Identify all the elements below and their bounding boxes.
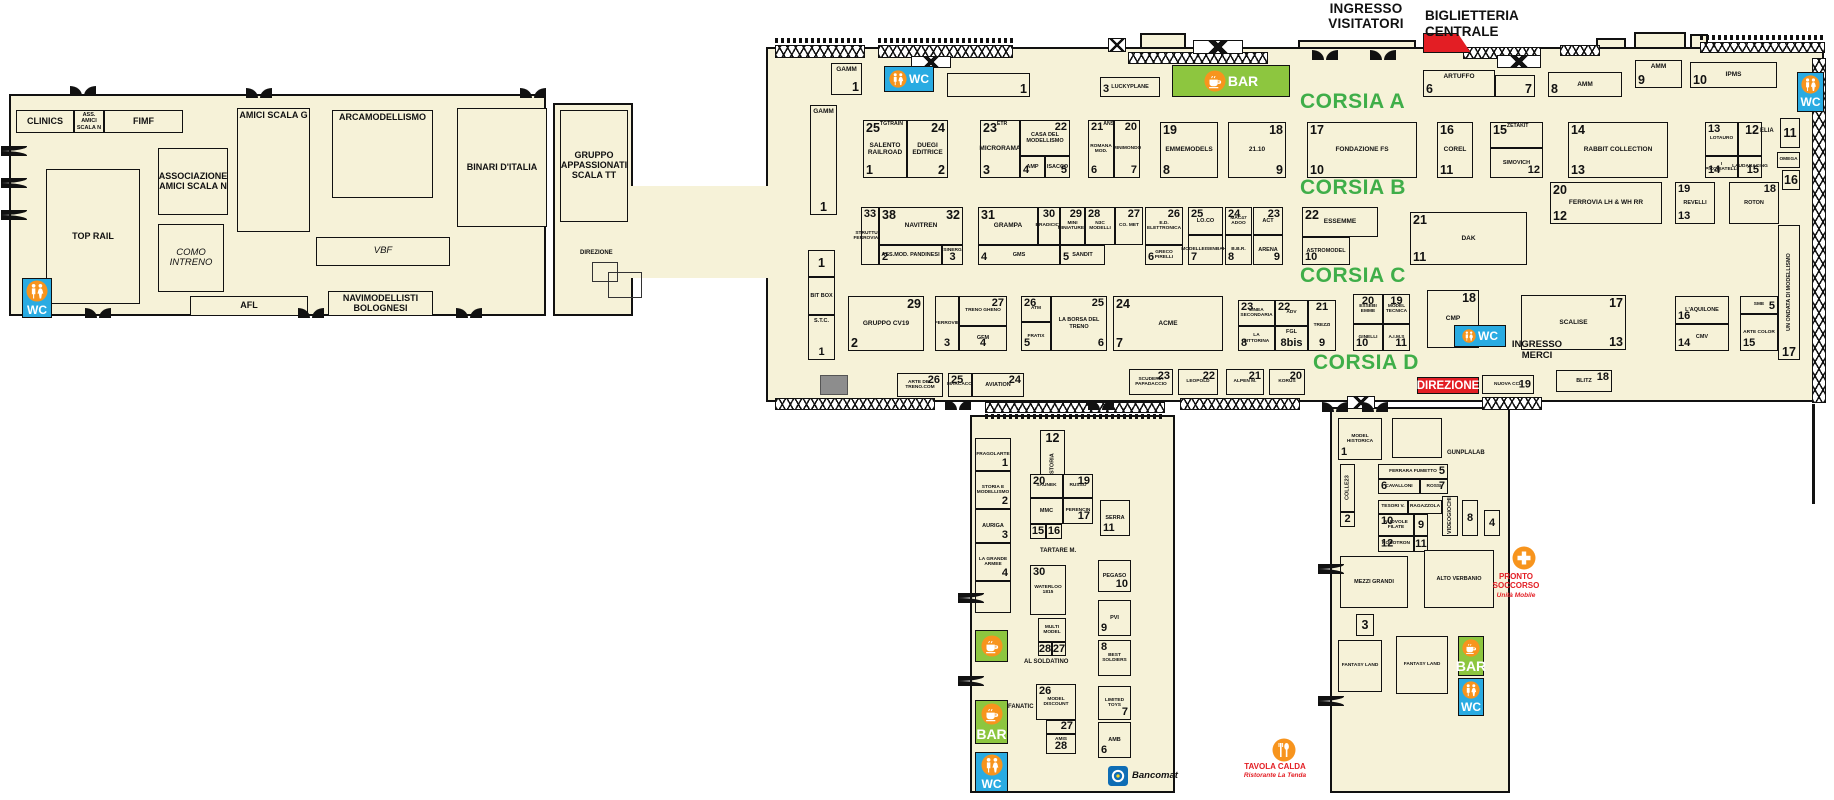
wc-people-icon	[889, 70, 907, 88]
stand-number: 28	[1088, 209, 1100, 220]
stand-dak: 21DAK11	[1410, 212, 1527, 265]
stand-videogiochi: VIDEOGIOCHI	[1442, 496, 1458, 536]
stand-fragolarte: FRAGOLARTE1	[975, 438, 1011, 471]
stand-ass-mod-pandinesi: ASS.MOD. PANDINESI2	[879, 245, 942, 265]
stand-e-d-elettronica: 26E.D. ELETTRONICA	[1145, 207, 1183, 245]
stand-number: 2	[1341, 513, 1354, 526]
stand-number: 15	[1747, 165, 1759, 176]
ambulance-icon	[1512, 546, 1536, 575]
stand-acme: 24ACME7	[1113, 296, 1223, 351]
stand-amb: AMB6	[1098, 722, 1131, 758]
stand-gfm: GFM4	[959, 326, 1007, 351]
stand-perencin: PERENCIN17	[1063, 498, 1093, 524]
stand-number: 2	[1002, 496, 1008, 507]
stand-fantasy-land: FANTASY LAND	[1338, 640, 1382, 692]
stand-number: 20	[1290, 371, 1302, 382]
stand-number: 22	[1203, 371, 1215, 382]
restaurant-icon	[1272, 738, 1296, 767]
stand-sinerg: SINERG3	[942, 245, 963, 265]
stand-number: 2	[851, 337, 858, 350]
label-fanatic: FANATIC	[1008, 704, 1034, 710]
stand-number: 11	[1103, 523, 1115, 534]
stand-number: 12	[1745, 124, 1759, 137]
stand-number: 25	[1191, 209, 1203, 220]
stand-number: 1	[866, 164, 873, 177]
wc-label: WC	[1478, 329, 1498, 343]
stand-number: 9	[1274, 252, 1280, 263]
stand-alpen-m: 21ALPEN M.	[1226, 369, 1264, 395]
stand-luckyplane: LUCKYPLANE3	[1100, 77, 1160, 97]
stand-number: 1	[809, 251, 834, 276]
stand-name: MMC	[1031, 499, 1062, 523]
stand-name: GRUPPO APPASSIONATI SCALA TT	[561, 111, 627, 221]
stand-blitz: 18BLITZ	[1556, 370, 1612, 392]
stand-artuffo: ARTUFFO6	[1423, 70, 1495, 97]
stand-tesori-v: TESORI V.	[1378, 500, 1408, 514]
window-icon	[1497, 55, 1541, 68]
stand-number: 38	[882, 209, 896, 222]
stand-number: 10	[1381, 516, 1393, 527]
stand-atm: 26ATM	[1021, 296, 1051, 322]
stand-name: BINARI D'ITALIA	[458, 109, 546, 226]
stand-number: 22	[1278, 302, 1290, 313]
stand-name: BIT BOX	[809, 278, 834, 314]
stand-s-t-c: S.T.C.1	[808, 315, 835, 360]
wc-people-icon	[26, 280, 48, 302]
stand-number: 20	[1553, 184, 1567, 197]
stand-number: 8	[1163, 164, 1170, 177]
stand-roton: 18ROTON	[1729, 182, 1779, 224]
stand-number: 27	[992, 298, 1004, 309]
stand-number: 3	[983, 164, 990, 177]
stand-1: 1	[947, 73, 1030, 97]
stand-number: 17	[1779, 346, 1799, 359]
stand-gamm: GAMM1	[831, 63, 862, 95]
stand-number: 12	[1381, 539, 1393, 550]
stand-number: 5	[1439, 466, 1445, 477]
stand-isacco: ISACCO5	[1045, 156, 1070, 178]
stand-minimondo: 20MINIMONDO7	[1114, 120, 1140, 178]
stand-gruppo-cv19: 29GRUPPO CV192	[848, 296, 924, 351]
stand-number: 7	[1116, 337, 1123, 350]
stand-name: AFL	[191, 297, 307, 315]
label-al-soldatino: AL SOLDATINO	[1024, 659, 1068, 665]
stand-pvi: PVI9	[1098, 600, 1131, 636]
stand-name: AMICI SCALA G	[238, 109, 309, 231]
stand-name: GAMM	[811, 106, 836, 214]
stand-name: RAGAZZOLA	[1409, 501, 1441, 513]
stand-russo: 19RUSSO	[1063, 474, 1093, 498]
stand-number: 11	[1781, 119, 1799, 147]
wc-label: WC	[982, 777, 1002, 791]
stand-limited-toys: LIMITED TOYS7	[1098, 686, 1131, 720]
label-ristorante-la-tenda: Ristorante La Tenda	[1240, 772, 1310, 779]
cafe-box	[975, 630, 1008, 662]
stand-colle23: COLLE23	[1340, 464, 1355, 512]
bar-label: BAR	[1228, 73, 1258, 89]
window-icon	[1108, 38, 1126, 52]
stand-11: 11	[1780, 118, 1800, 148]
stand-top-rail: TOP RAIL	[46, 169, 140, 304]
stand-number: 20	[1354, 296, 1382, 307]
stand-number: 6	[1098, 338, 1104, 349]
stand-ipms: IPMS10	[1690, 62, 1777, 88]
stand-amm: AMM9	[1635, 60, 1682, 88]
stand-mac47-adoo: 24MAC47 ADOO	[1225, 207, 1252, 235]
stand-number: 1	[809, 347, 834, 358]
stand-grampa: 31GRAMPA	[978, 207, 1038, 245]
stand-1: 1	[808, 250, 835, 277]
label-ingresso-visitatori: INGRESSO VISITATORI	[1318, 2, 1414, 32]
room-corridor	[630, 186, 770, 278]
door-icon	[246, 88, 272, 98]
stand-serra: SERRA11	[1100, 500, 1130, 536]
door-icon	[456, 308, 482, 318]
stand-navitren: 3832NAVITREN	[879, 207, 963, 245]
stand-number: 13	[1571, 164, 1585, 177]
label-tartare-m: TARTARE M.	[1040, 548, 1076, 554]
stand-treno-gheno: 27TRENO GHENO	[959, 296, 1007, 326]
stand-nuova-ccl: 19NUOVA CCL	[1482, 375, 1534, 394]
stand-number: 21	[1309, 302, 1335, 313]
door-icon	[1, 210, 27, 220]
stand-robotron: 12ROBOTRON	[1378, 536, 1414, 552]
stand-number: 10	[1356, 338, 1368, 349]
stand-number: 7	[1191, 252, 1197, 263]
stand-number: 27	[1128, 209, 1140, 220]
stand-number: 25	[951, 375, 963, 386]
stand-number: 5	[1769, 301, 1775, 312]
stand-bradicich: 30BRADICICH	[1038, 207, 1060, 245]
stand-name: ASSOCIAZIONE AMICI SCALA N	[159, 149, 227, 214]
truss-wall	[1482, 397, 1542, 410]
stand-ginelli: GINELLI10	[1353, 324, 1383, 351]
stand-number: 12	[1041, 432, 1064, 445]
stand-sandit: SANDIT5	[1060, 245, 1105, 265]
stand-lotauro: 13LOTAURO	[1705, 122, 1738, 156]
label-ingresso-merci: INGRESSO MERCI	[1498, 340, 1576, 362]
stand-number: 13	[1708, 124, 1720, 135]
stand-21-10: 1821.109	[1228, 122, 1286, 178]
label-direzione: DIREZIONE	[580, 250, 613, 256]
stand-bit-box: BIT BOX	[808, 277, 835, 315]
door-icon	[1088, 400, 1114, 410]
stand-2: 2	[1340, 512, 1355, 527]
stand-name: LUCKYPLANE	[1101, 78, 1159, 96]
door-icon	[1318, 696, 1344, 706]
stand-7: 7	[1495, 75, 1535, 97]
stand-number: 22	[1055, 122, 1067, 133]
stand-number: 13	[1678, 211, 1690, 222]
stand-number: 11	[1440, 164, 1453, 177]
stand-pegaso: PEGASO10	[1098, 560, 1131, 592]
stand-number: 10	[1305, 252, 1317, 263]
stand-number: 28	[1047, 741, 1075, 752]
stand-trezzi: 21TREZZI9	[1308, 300, 1336, 351]
stand-number: 1	[1020, 83, 1027, 96]
stand-number: 24	[1009, 375, 1021, 386]
stand-number: 19	[1163, 124, 1177, 137]
stand-mini-miniatures: 29MINI MINIATURES	[1060, 207, 1085, 245]
stand-modelleisenbahn: MODELLEISENBAHN7	[1188, 235, 1223, 265]
stand-28: 28	[1038, 642, 1052, 656]
stand-amm: AMM8	[1548, 72, 1622, 97]
label-gunplalab: GUNPLALAB	[1447, 450, 1485, 456]
stand-number: 30	[1039, 209, 1059, 220]
stand-number: 17	[1609, 297, 1623, 310]
stand-number: 8	[1551, 83, 1558, 96]
stand-number: 5	[1063, 252, 1069, 263]
stand-number: 16	[1783, 171, 1799, 189]
stand-number: 4	[960, 338, 1006, 349]
wc-box: WC	[884, 66, 934, 92]
door-icon	[298, 308, 324, 318]
stand-name: FERROVIA LH & WH RR	[1551, 183, 1661, 223]
stand-ferrovia-lh-wh-rr: 20FERROVIA LH & WH RR12	[1550, 182, 1662, 224]
stand-number: 6	[1091, 165, 1097, 176]
stand-number: 3	[936, 338, 958, 349]
stand-number: 15	[1743, 338, 1755, 349]
door-icon	[1, 146, 27, 156]
stand-number: 14	[1678, 338, 1690, 349]
stand-number: 5	[1024, 338, 1030, 349]
stand-number: 26	[1039, 686, 1051, 697]
stand-16: 16	[1782, 170, 1800, 190]
coffee-cup-icon	[981, 703, 1003, 725]
stand-name: GMS	[979, 246, 1059, 264]
stand-co-met: 27CO. MET	[1115, 207, 1143, 245]
stand-9: 9	[1414, 514, 1428, 536]
stand-number: 9	[1638, 74, 1645, 87]
stand-name: ACME	[1114, 297, 1222, 350]
stand-number: 9	[1101, 623, 1107, 634]
stand-number: 15	[1031, 525, 1045, 538]
door-icon	[958, 676, 984, 686]
stand-multi-model: MULTI MODEL	[1038, 618, 1066, 642]
stand-number: 4	[1002, 568, 1008, 579]
stand-linea-secondaria: 23LINEA SECONDARIA	[1238, 300, 1275, 326]
stand-number: 7	[1439, 481, 1445, 492]
wc-label: WC	[909, 72, 929, 86]
stand-como-intreno: COMO INTRENO	[158, 224, 224, 292]
stand-fondazione-fs: 17FONDAZIONE FS10	[1307, 122, 1417, 178]
stand-amici-scala-g: AMICI SCALA G	[237, 108, 310, 232]
stand-15: 15ZETAKIT	[1490, 122, 1543, 148]
stand-number: 33	[862, 209, 878, 220]
stand-name: FERRARA FUMETTO	[1379, 465, 1447, 478]
stand-number: 9	[1276, 164, 1283, 177]
stand-number: 23	[1268, 209, 1280, 220]
stand-name: MEZZI GRANDI	[1341, 557, 1407, 607]
stand-ferrara-fumetto: FERRARA FUMETTO5	[1378, 464, 1448, 479]
stand-name: UN ONDATA DI MODELLISMO	[1779, 226, 1799, 359]
stand-mezzi-grandi: MEZZI GRANDI	[1340, 556, 1408, 608]
stand-number: 19	[1678, 184, 1690, 195]
stand-number: 22	[1305, 209, 1319, 222]
label-corsia-c: CORSIA C	[1300, 264, 1406, 288]
stand-number: 29	[907, 298, 921, 311]
door-icon	[70, 86, 96, 96]
stand-number: 5	[1061, 165, 1067, 176]
wc-people-icon	[981, 754, 1003, 776]
stand-number: 3	[1357, 615, 1373, 635]
truss-wall	[1180, 398, 1300, 410]
stand-associazione-amici-scala-n: ASSOCIAZIONE AMICI SCALA N	[158, 148, 228, 215]
service-block	[820, 375, 848, 395]
stand-sme: SME5	[1740, 296, 1778, 314]
label-unit-mobile: Unità Mobile	[1486, 592, 1546, 599]
stand-number: 26	[1168, 209, 1180, 220]
door-icon	[1322, 402, 1348, 412]
stand-navimodellisti-bolognesi: NAVIMODELLISTI BOLOGNESI	[328, 291, 433, 316]
stand-la-littorina: LA LITTORINA8	[1238, 326, 1275, 351]
stand-number: 9	[1415, 515, 1427, 535]
stand-act: 23ACT	[1253, 207, 1283, 235]
stand-number: 8	[1228, 252, 1234, 263]
stand-number: 1	[1341, 447, 1347, 458]
stand-clinics: CLINICS	[16, 110, 74, 133]
stand-27: 27	[1052, 642, 1066, 656]
stand-number: 15ZETAKIT	[1493, 124, 1528, 137]
stand-a-i-m-s: A.I.M.S11	[1383, 324, 1410, 351]
coffee-cup-icon	[1462, 639, 1480, 657]
stand-number: 7	[1131, 165, 1137, 176]
stand-struttura-ferroviaria: 33STRUTTURA FERROVIARIA	[861, 207, 879, 265]
stand-la-grande-armee: LA GRANDE ARMEE4	[975, 543, 1011, 581]
dotted-wall	[775, 38, 865, 43]
stand-name: CLINICS	[17, 111, 73, 132]
bar-label: BAR	[976, 726, 1006, 742]
coffee-cup-icon	[981, 635, 1003, 657]
stand-number: 27	[1053, 643, 1065, 655]
stand-number: 11	[1415, 537, 1427, 551]
stand-name: FIMF	[105, 111, 182, 132]
stand-arcamodellismo: ARCAMODELLISMO	[332, 110, 433, 198]
stand-name: TOP RAIL	[47, 170, 139, 303]
stand-microrama: 23ETRMICRORAMA3	[980, 120, 1020, 178]
stand-number: 2	[938, 164, 945, 177]
stand-name: VIDEOGIOCHI	[1443, 497, 1457, 535]
stand-number: 30	[1033, 567, 1045, 578]
stand-number: 19	[1519, 379, 1531, 390]
dotted-wall	[1812, 404, 1817, 504]
stand-number: 3	[1002, 530, 1008, 541]
stand-cmv: CMV14	[1675, 324, 1729, 351]
stand-amis: AMIS28	[1046, 734, 1076, 754]
stand-mmc: MMC	[1030, 498, 1063, 524]
stand-12: 12	[1738, 122, 1762, 156]
stand-name: FANTASY LAND	[1339, 641, 1381, 691]
label-bancomat: Bancomat	[1132, 770, 1178, 781]
stand-number: 27	[1061, 721, 1073, 732]
stand-name: DAK	[1411, 213, 1526, 264]
stand-number: 32	[946, 209, 960, 222]
stand-3: 3	[1356, 614, 1374, 636]
stand-number: 31	[981, 209, 995, 222]
stand-number: 23ETR	[983, 122, 1007, 135]
stand-16: 16	[1046, 524, 1062, 539]
stand-name: FONDAZIONE FS	[1308, 123, 1416, 177]
wc-box: WC	[1458, 678, 1484, 716]
stand-number: 1	[1002, 458, 1008, 469]
stand-number: 12	[1528, 165, 1540, 176]
stand-box	[1392, 418, 1442, 458]
stand-number: 29	[1070, 209, 1082, 220]
label-elia: ELIA	[1760, 128, 1774, 134]
stand-salento-railroad: 25TGTRAINSALENTO RAILROAD1	[863, 120, 907, 178]
stand-sublabel: ZETAKIT	[1507, 123, 1529, 129]
stand-number: 8	[1463, 501, 1477, 535]
door-icon	[945, 400, 971, 410]
dotted-wall	[878, 38, 1013, 43]
stand-ragazzola: RAGAZZOLA	[1408, 500, 1442, 514]
stand-15: 15	[1030, 524, 1046, 539]
stand-number: 6	[1148, 252, 1154, 263]
bancomat-icon	[1108, 766, 1128, 791]
stand-4: 4	[1484, 510, 1500, 536]
coffee-cup-icon	[1204, 70, 1226, 92]
stand-b-b-r: B.B.R.8	[1225, 235, 1252, 265]
label-corsia-a: CORSIA A	[1300, 90, 1405, 114]
door-icon	[1, 178, 27, 188]
stand-l-aquilone: L'AQUILONE16	[1675, 296, 1729, 324]
stand-number: 25TGTRAIN	[866, 122, 903, 135]
stand-best-soldiers: 8BEST SOLDIERS	[1098, 640, 1131, 676]
stand-aviation: 24AVIATION	[972, 373, 1024, 397]
stand-duegi-editrice: 24DUEGI EDITRICE2	[907, 120, 948, 178]
stand-casa-del-modellismo: 22CASA DEL MODELLISMO	[1020, 120, 1070, 156]
stand-fratix: FRATIX5	[1021, 322, 1051, 351]
stand-number: 4	[1485, 511, 1499, 535]
stand-arte-del-treno-com: 26ARTE DEL TRENO.COM	[897, 373, 943, 397]
wc-people-icon	[1801, 75, 1820, 94]
wc-box: WC	[1797, 72, 1824, 112]
stand-arte-color: ARTE COLOR15	[1740, 314, 1778, 351]
truss-wall	[775, 398, 935, 410]
stand-number: 18	[1764, 184, 1776, 195]
stand-name: MULTI MODEL	[1039, 619, 1065, 641]
stand-leopold: 22LEOPOLD	[1178, 369, 1218, 395]
stand-number: 16	[1678, 311, 1690, 322]
stand-number: 1	[852, 81, 859, 94]
stand-number: 6	[1381, 481, 1387, 492]
stand-number: 23	[1158, 371, 1170, 382]
stand-name: COMO INTRENO	[159, 225, 223, 291]
stand-ferrovie: FERROVIE3	[935, 296, 959, 351]
stand-number: 10	[1693, 74, 1707, 87]
door-icon	[1318, 564, 1344, 574]
stand-emmemodels: 19EMMEMODELS8	[1160, 122, 1218, 178]
stand-model-historica: MODEL HISTORICA1	[1338, 418, 1382, 460]
stand-number: 28	[1039, 643, 1051, 655]
exhibition-floor-plan: CLINICSASS. AMICI SCALA NFIMFAMICI SCALA…	[0, 0, 1834, 800]
stand-astromodel: ASTROMODEL10	[1302, 237, 1350, 265]
stand-number: 24	[931, 122, 945, 135]
stand-number: 26	[928, 375, 940, 386]
stand-number: 1	[811, 201, 836, 214]
direzione-office: DIREZIONE	[1417, 377, 1479, 394]
wc-label: WC	[1801, 95, 1821, 109]
stand-number: 18	[1462, 292, 1476, 305]
truss-wall	[775, 45, 865, 58]
stand-number: 9	[1309, 338, 1335, 349]
stand-number: 3	[943, 252, 962, 263]
stand-romana-mod: 21ANSALONIROMANA MOD.6	[1088, 120, 1114, 178]
truss-wall	[1560, 45, 1600, 56]
stand-model-tecnica: 19MODEL TECNICA	[1383, 294, 1410, 324]
stand-omega: OMEGA	[1777, 152, 1800, 168]
dotted-wall	[1700, 35, 1825, 40]
